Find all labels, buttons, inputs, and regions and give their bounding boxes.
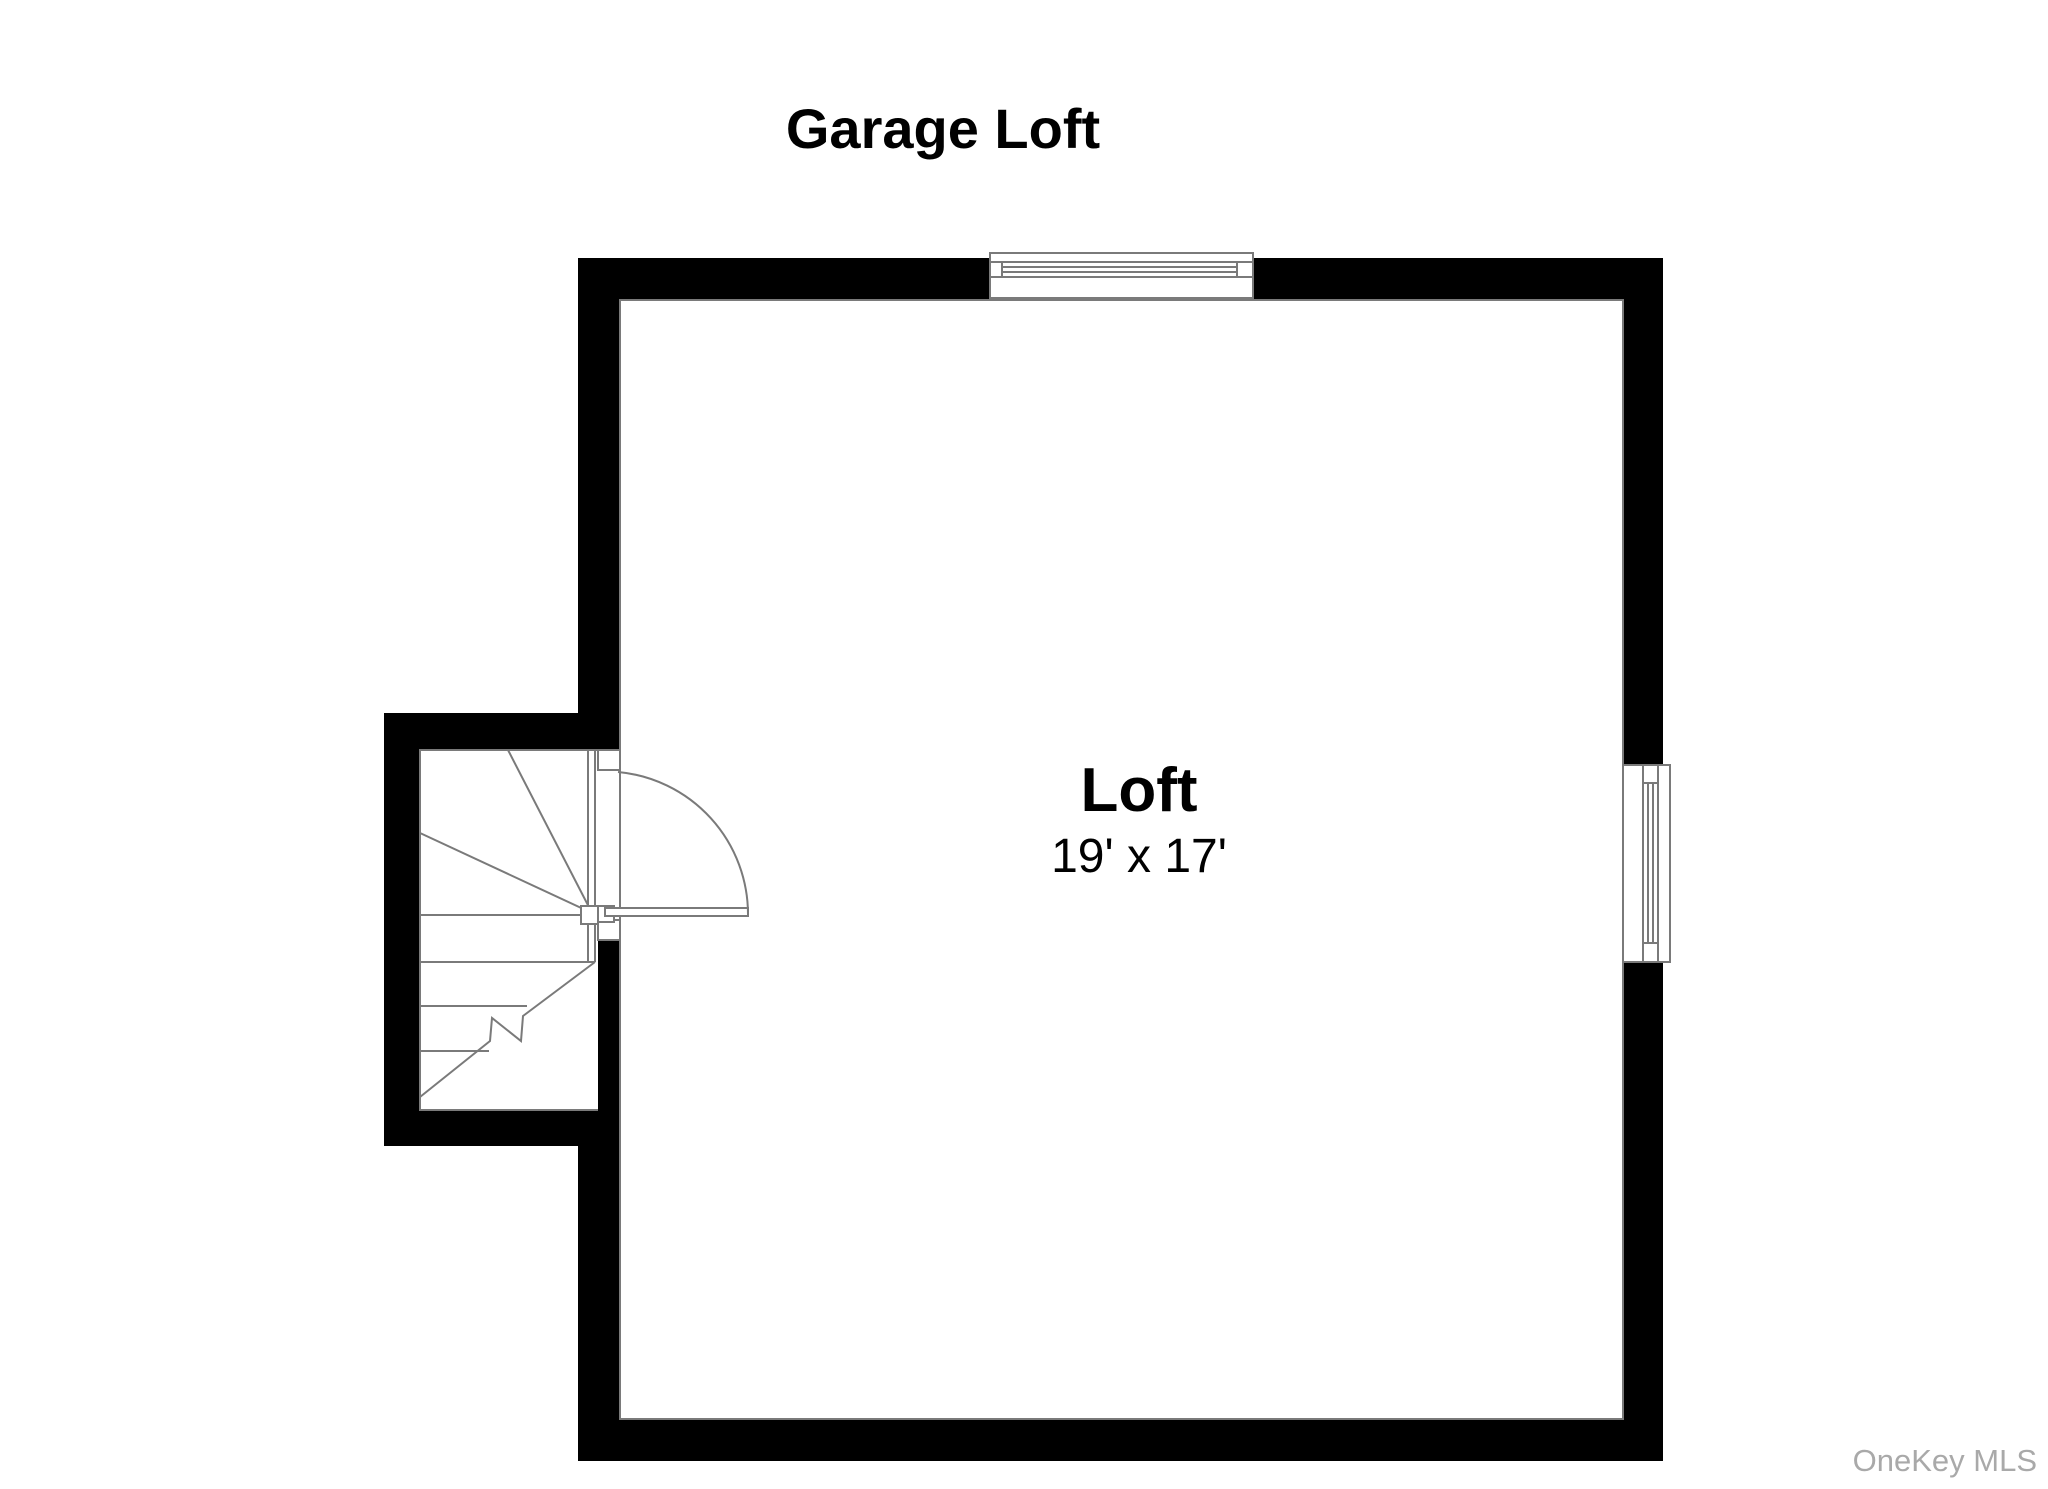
stair-room-outline: [420, 750, 598, 1110]
left-wall-upper-segment: [578, 258, 620, 750]
left-wall-lower-segment: [578, 1110, 620, 1461]
staircase: [420, 750, 595, 1097]
right-window: [1623, 765, 1670, 962]
floor-plan-drawing: [0, 0, 2048, 1489]
door: [581, 750, 748, 940]
door-swing-arc: [618, 772, 748, 915]
door-jamb-top: [598, 750, 620, 770]
stair-partition-lines: [588, 750, 595, 962]
room-name: Loft: [1051, 758, 1227, 823]
door-wall-lower-segment: [598, 940, 620, 1110]
door-hinge-block-left: [581, 906, 598, 924]
stair-break-line: [420, 962, 595, 1097]
top-window: [990, 253, 1253, 298]
right-window-frame: [1623, 765, 1670, 962]
watermark: OneKey MLS: [1853, 1443, 2037, 1479]
stair-bottom-wall: [384, 1110, 620, 1146]
stair-winder-line-2: [420, 833, 592, 913]
stair-left-wall: [384, 713, 420, 1146]
door-panel: [605, 908, 748, 916]
top-window-frame: [990, 253, 1253, 298]
right-wall-upper-segment: [1623, 258, 1663, 765]
top-wall-right-segment: [1253, 258, 1663, 300]
room-label: Loft 19' x 17': [1051, 758, 1227, 884]
room-dimensions: 19' x 17': [1051, 829, 1227, 884]
bottom-wall: [578, 1419, 1663, 1461]
right-wall-lower-segment: [1623, 962, 1663, 1461]
stair-winder-line-1: [508, 750, 592, 913]
top-wall-left-segment: [578, 258, 990, 300]
floor-plan-page: Garage Loft: [0, 0, 2048, 1489]
